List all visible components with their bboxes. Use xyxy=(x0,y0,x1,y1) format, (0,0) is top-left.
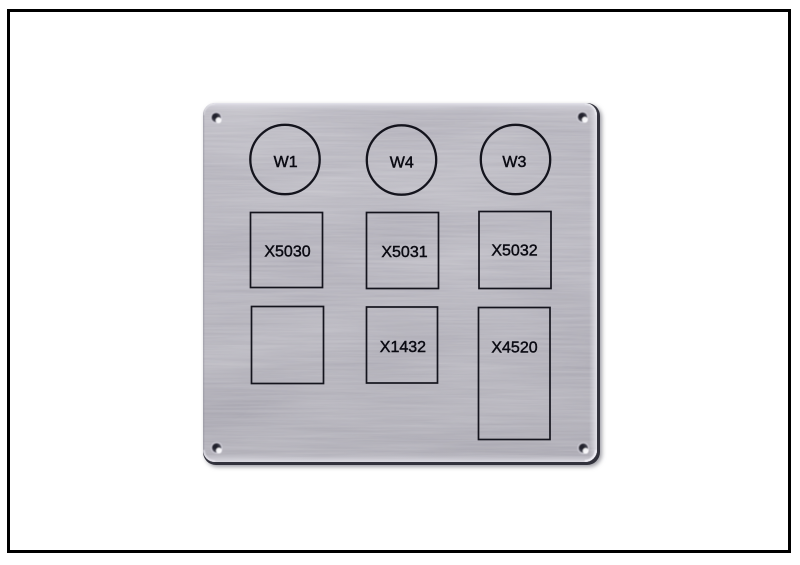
svg-text:W3: W3 xyxy=(502,154,526,171)
svg-text:W1: W1 xyxy=(274,154,298,171)
svg-text:X5032: X5032 xyxy=(491,243,537,260)
svg-text:X4520: X4520 xyxy=(491,339,537,356)
svg-text:X1432: X1432 xyxy=(380,339,426,356)
svg-text:X5031: X5031 xyxy=(381,244,427,261)
svg-text:X5030: X5030 xyxy=(264,244,310,261)
svg-text:W4: W4 xyxy=(390,154,414,171)
